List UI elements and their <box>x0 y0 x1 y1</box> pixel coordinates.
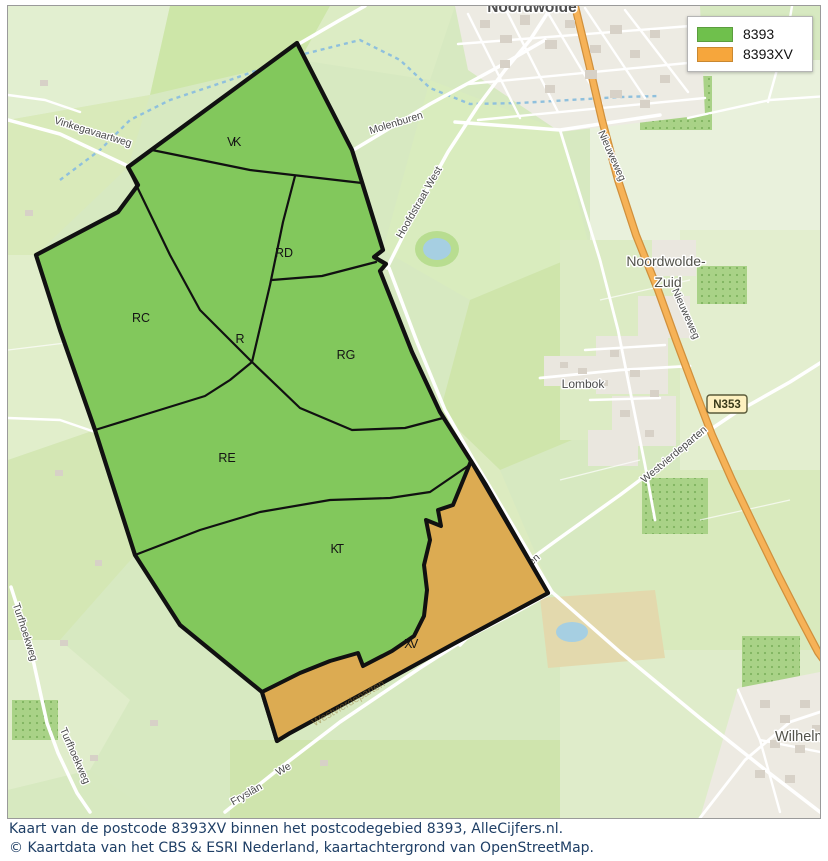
legend-label-8393: 8393 <box>743 26 774 42</box>
caption-line-2: © Kaartdata van het CBS & ESRI Nederland… <box>9 839 594 858</box>
pond-south <box>556 622 588 642</box>
region-label-rg: RG <box>337 348 356 362</box>
region-label-re: RE <box>218 451 235 465</box>
map-svg: Noordwolde Vinkegavaartweg Molenburen Ho… <box>8 6 820 818</box>
caption: Kaart van de postcode 8393XV binnen het … <box>9 820 594 858</box>
region-label-rd: RD <box>275 246 293 260</box>
region-label-rc: RC <box>132 311 150 325</box>
pond-north <box>423 238 451 260</box>
place-label-noordwolde-zuid-1: Noordwolde- <box>626 253 706 269</box>
place-label-noordwolde: Noordwolde <box>487 6 577 16</box>
road-shield-n353: N353 <box>707 395 747 413</box>
place-label-wilhelminaoord: Wilhelmi <box>775 729 820 745</box>
place-label-lombok: Lombok <box>562 377 606 391</box>
map-canvas[interactable]: Noordwolde Vinkegavaartweg Molenburen Ho… <box>8 6 820 818</box>
page: Noordwolde Vinkegavaartweg Molenburen Ho… <box>0 0 828 861</box>
legend-swatch-8393 <box>697 27 733 42</box>
legend-swatch-8393xv <box>697 47 733 62</box>
region-label-r: R <box>235 332 244 346</box>
legend-label-8393xv: 8393XV <box>743 46 793 62</box>
svg-text:N353: N353 <box>713 399 741 411</box>
caption-line-1: Kaart van de postcode 8393XV binnen het … <box>9 820 594 839</box>
legend: 8393 8393XV <box>687 16 813 72</box>
legend-item-8393xv: 8393XV <box>697 44 803 64</box>
legend-item-8393: 8393 <box>697 24 803 44</box>
place-label-noordwolde-zuid-2: Zuid <box>654 274 681 290</box>
